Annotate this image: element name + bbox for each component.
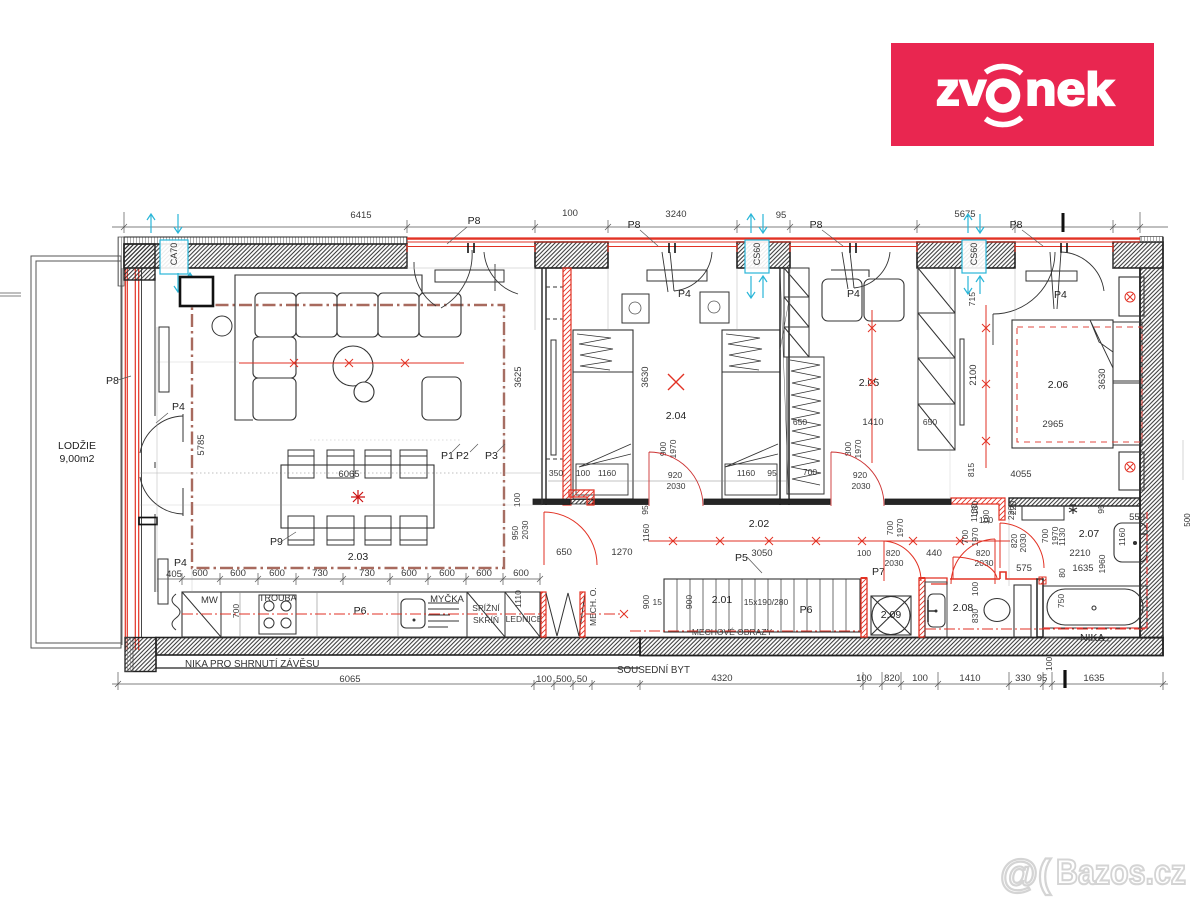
svg-text:3630: 3630 [640,366,651,387]
svg-text:950: 950 [510,526,520,540]
svg-text:1970: 1970 [853,439,863,458]
svg-text:P8: P8 [810,219,823,231]
svg-text:CS60: CS60 [752,243,762,266]
svg-text:650: 650 [923,417,937,427]
svg-text:1635: 1635 [1072,563,1093,574]
svg-text:2.07: 2.07 [1079,528,1100,540]
svg-text:15: 15 [653,597,663,607]
svg-text:920: 920 [668,470,682,480]
svg-text:1960: 1960 [1097,554,1107,573]
svg-text:P4: P4 [1054,289,1067,301]
svg-text:1970: 1970 [1050,526,1060,545]
svg-text:3240: 3240 [665,209,686,220]
svg-text:SPÍŽNÍ: SPÍŽNÍ [472,603,500,613]
svg-text:P4: P4 [174,557,187,569]
svg-text:700: 700 [960,530,970,544]
svg-text:P2: P2 [456,450,469,462]
svg-text:700: 700 [803,467,817,477]
svg-text:LEDNICE: LEDNICE [506,614,543,624]
svg-text:6065: 6065 [339,674,360,685]
svg-text:SOUSEDNÍ BYT: SOUSEDNÍ BYT [617,665,690,676]
svg-text:2210: 2210 [1069,548,1090,559]
svg-text:NIKA: NIKA [1080,632,1105,644]
svg-text:100: 100 [970,582,980,596]
svg-text:95: 95 [767,468,777,478]
svg-text:P8: P8 [1010,219,1023,231]
svg-text:5785: 5785 [196,434,207,455]
svg-text:95: 95 [1096,504,1106,514]
svg-text:600: 600 [192,568,208,579]
svg-text:2030: 2030 [975,558,994,568]
svg-text:80: 80 [1057,568,1067,578]
svg-text:500: 500 [1183,513,1192,527]
svg-text:P8: P8 [628,219,641,231]
svg-text:2.01: 2.01 [712,594,733,606]
svg-text:550: 550 [1129,512,1145,523]
svg-text:95: 95 [1037,673,1048,684]
svg-text:600: 600 [401,568,417,579]
svg-text:2.03: 2.03 [348,551,369,563]
svg-text:600: 600 [230,568,246,579]
svg-text:4055: 4055 [1010,469,1031,480]
svg-text:830: 830 [970,609,980,623]
svg-text:LODŽIE: LODŽIE [58,439,96,452]
svg-text:MECHOVÉ OBRAZY: MECHOVÉ OBRAZY [692,627,773,637]
svg-text:SKŘÍŇ: SKŘÍŇ [473,615,499,625]
svg-text:3050: 3050 [751,548,772,559]
svg-text:nek: nek [1025,63,1114,115]
svg-text:2030: 2030 [667,481,686,491]
svg-text:1160: 1160 [1117,528,1127,547]
svg-text:2.09: 2.09 [881,609,902,621]
svg-text:50: 50 [577,674,588,685]
svg-text:6065: 6065 [338,469,359,480]
svg-text:715: 715 [967,292,977,306]
svg-text:9,00m2: 9,00m2 [59,453,94,465]
svg-text:2030: 2030 [885,558,904,568]
svg-text:P7: P7 [872,566,885,578]
svg-text:MECH. O.: MECH. O. [588,587,598,626]
svg-text:1410: 1410 [959,673,980,684]
svg-text:220: 220 [1008,501,1018,515]
svg-text:P4: P4 [172,401,185,413]
svg-text:NIKA PRO SHRNUTÍ ZÁVĚSU: NIKA PRO SHRNUTÍ ZÁVĚSU [185,659,319,670]
svg-text:815: 815 [966,463,976,477]
svg-text:730: 730 [359,568,375,579]
svg-text:1410: 1410 [862,417,883,428]
svg-text:820: 820 [886,548,900,558]
svg-text:900: 900 [641,595,651,609]
svg-text:920: 920 [853,470,867,480]
svg-text:100: 100 [536,674,552,685]
svg-text:P4: P4 [847,288,860,300]
svg-text:2030: 2030 [520,520,530,539]
svg-text:P6: P6 [354,605,367,617]
svg-text:730: 730 [312,568,328,579]
svg-text:100: 100 [912,673,928,684]
svg-text:1160: 1160 [598,468,617,478]
svg-text:820: 820 [976,548,990,558]
svg-text:zv: zv [936,63,986,115]
svg-text:600: 600 [476,568,492,579]
svg-text:1635: 1635 [1083,673,1104,684]
svg-text:Bazos.cz: Bazos.cz [1056,853,1186,892]
svg-text:500: 500 [556,674,572,685]
svg-text:100: 100 [981,510,991,524]
svg-text:95: 95 [776,210,787,221]
svg-text:P9: P9 [270,536,283,548]
svg-text:3630: 3630 [1097,368,1108,389]
svg-text:2.04: 2.04 [666,410,687,422]
svg-text:2100: 2100 [968,364,979,385]
svg-text:100: 100 [856,673,872,684]
svg-text:P5: P5 [735,552,748,564]
svg-text:CA70: CA70 [169,243,179,266]
svg-text:1970: 1970 [895,518,905,537]
svg-text:6415: 6415 [350,210,371,221]
svg-text:P4: P4 [678,288,691,300]
svg-text:1160: 1160 [641,524,651,543]
svg-text:100: 100 [576,468,590,478]
svg-text:1270: 1270 [611,547,632,558]
svg-text:330: 330 [1015,673,1031,684]
svg-text:1130: 1130 [969,504,979,523]
svg-text:650: 650 [793,417,807,427]
svg-text:650: 650 [556,547,572,558]
svg-text:2030: 2030 [1018,533,1028,552]
svg-text:1160: 1160 [737,468,756,478]
svg-text:P8: P8 [106,375,119,387]
svg-text:95: 95 [640,505,650,515]
svg-text:405: 405 [166,569,182,580]
svg-text:100: 100 [1044,657,1054,671]
svg-text:900: 900 [684,595,694,609]
svg-text:820: 820 [884,673,900,684]
svg-text:2.06: 2.06 [1048,379,1069,391]
svg-text:15x190/280: 15x190/280 [744,597,789,607]
svg-text:4320: 4320 [711,673,732,684]
svg-text:P8: P8 [468,215,481,227]
svg-text:3625: 3625 [513,366,524,387]
svg-text:700: 700 [231,604,241,618]
svg-text:575: 575 [1016,563,1032,574]
svg-text:100: 100 [857,548,871,558]
svg-text:440: 440 [926,548,942,559]
svg-text:P3: P3 [485,450,498,462]
svg-text:2965: 2965 [1042,419,1063,430]
svg-text:MYČKA: MYČKA [430,594,464,605]
svg-text:600: 600 [513,568,529,579]
svg-text:700: 700 [885,521,895,535]
svg-text:P6: P6 [800,604,813,616]
svg-text:CS60: CS60 [969,243,979,266]
svg-text:2030: 2030 [852,481,871,491]
svg-text:350: 350 [549,468,563,478]
svg-text:100: 100 [562,208,578,219]
svg-text:600: 600 [269,568,285,579]
svg-text:TROUBA: TROUBA [259,593,297,603]
svg-text:2.02: 2.02 [749,518,770,530]
svg-text:750: 750 [1056,594,1066,608]
svg-text:700: 700 [1040,529,1050,543]
svg-text:1110: 1110 [513,590,523,608]
svg-text:MW: MW [201,595,218,606]
svg-text:@(: @( [1000,853,1051,896]
svg-text:600: 600 [439,568,455,579]
